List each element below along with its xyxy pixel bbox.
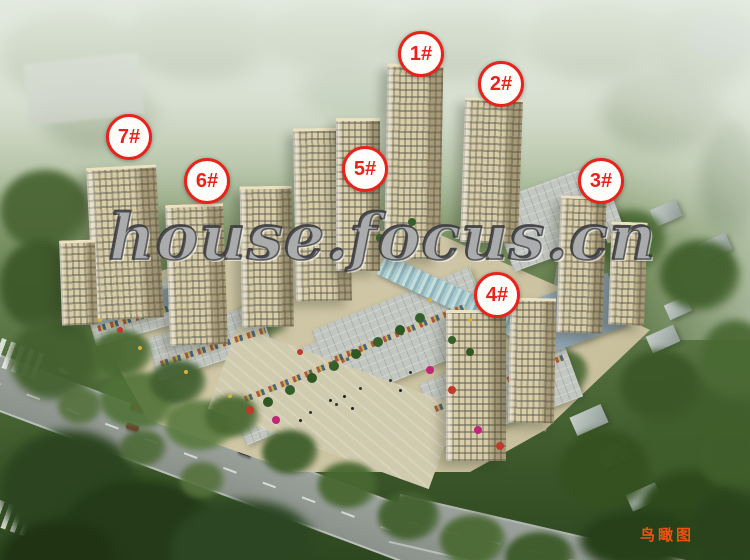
palm-tree: [329, 361, 339, 371]
umbrella: [426, 366, 434, 374]
tree: [660, 240, 740, 310]
building-marker-6[interactable]: 6#: [184, 158, 230, 204]
building-marker-6-label: 6#: [196, 170, 218, 193]
pedestrian: [329, 399, 332, 402]
building-marker-2[interactable]: 2#: [478, 61, 524, 107]
palm-tree: [395, 325, 405, 335]
umbrella: [246, 406, 254, 414]
umbrella: [448, 386, 456, 394]
building-marker-1-label: 1#: [410, 43, 432, 66]
pedestrian: [299, 419, 302, 422]
pedestrian: [351, 407, 354, 410]
pedestrian: [359, 387, 362, 390]
building-marker-2-label: 2#: [490, 73, 512, 96]
pedestrian: [409, 371, 412, 374]
tower-building: [508, 298, 556, 424]
tree: [58, 388, 102, 424]
tree: [560, 430, 650, 510]
umbrella: [117, 327, 123, 333]
flag-pole: [138, 346, 142, 350]
palm-tree: [307, 373, 317, 383]
building-marker-5[interactable]: 5#: [342, 146, 388, 192]
flag-pole: [98, 318, 102, 322]
palm-tree: [285, 385, 295, 395]
flag-pole: [428, 298, 432, 302]
tree: [378, 492, 440, 540]
pedestrian: [335, 403, 338, 406]
building-marker-5-label: 5#: [354, 158, 376, 181]
tree: [0, 170, 90, 250]
tree: [620, 350, 700, 420]
pedestrian: [343, 395, 346, 398]
tree: [318, 462, 378, 508]
pedestrian: [389, 379, 392, 382]
flag-pole: [468, 318, 472, 322]
palm-tree: [263, 397, 273, 407]
umbrella: [474, 426, 482, 434]
tower-building: [446, 310, 506, 461]
flag-pole: [228, 394, 232, 398]
building-marker-7-label: 7#: [118, 126, 140, 149]
flag-pole: [184, 370, 188, 374]
umbrella: [297, 349, 303, 355]
palm-tree: [373, 337, 383, 347]
palm-tree: [351, 349, 361, 359]
pedestrian: [309, 411, 312, 414]
umbrella: [272, 416, 280, 424]
tree: [440, 515, 506, 560]
building-marker-1[interactable]: 1#: [398, 31, 444, 77]
tree: [180, 462, 224, 498]
tree: [150, 360, 206, 404]
watermark-text: house.focus.cn: [108, 200, 656, 275]
building-marker-4-label: 4#: [486, 284, 508, 307]
tree: [120, 430, 166, 466]
building-marker-3-label: 3#: [590, 170, 612, 193]
building-marker-4[interactable]: 4#: [474, 272, 520, 318]
building-marker-7[interactable]: 7#: [106, 114, 152, 160]
tree: [92, 330, 152, 376]
caption-text: 鸟瞰图: [640, 524, 694, 545]
palm-tree: [415, 313, 425, 323]
palm-tree: [448, 336, 456, 344]
tree: [205, 395, 259, 437]
building-marker-3[interactable]: 3#: [578, 158, 624, 204]
tree: [262, 430, 318, 474]
pedestrian: [399, 389, 402, 392]
umbrella: [496, 442, 504, 450]
tower-building: [59, 239, 98, 325]
palm-tree: [466, 348, 474, 356]
aerial-rendering: house.focus.cn 1# 2# 3# 4# 5# 6# 7# 鸟瞰图: [0, 0, 750, 560]
